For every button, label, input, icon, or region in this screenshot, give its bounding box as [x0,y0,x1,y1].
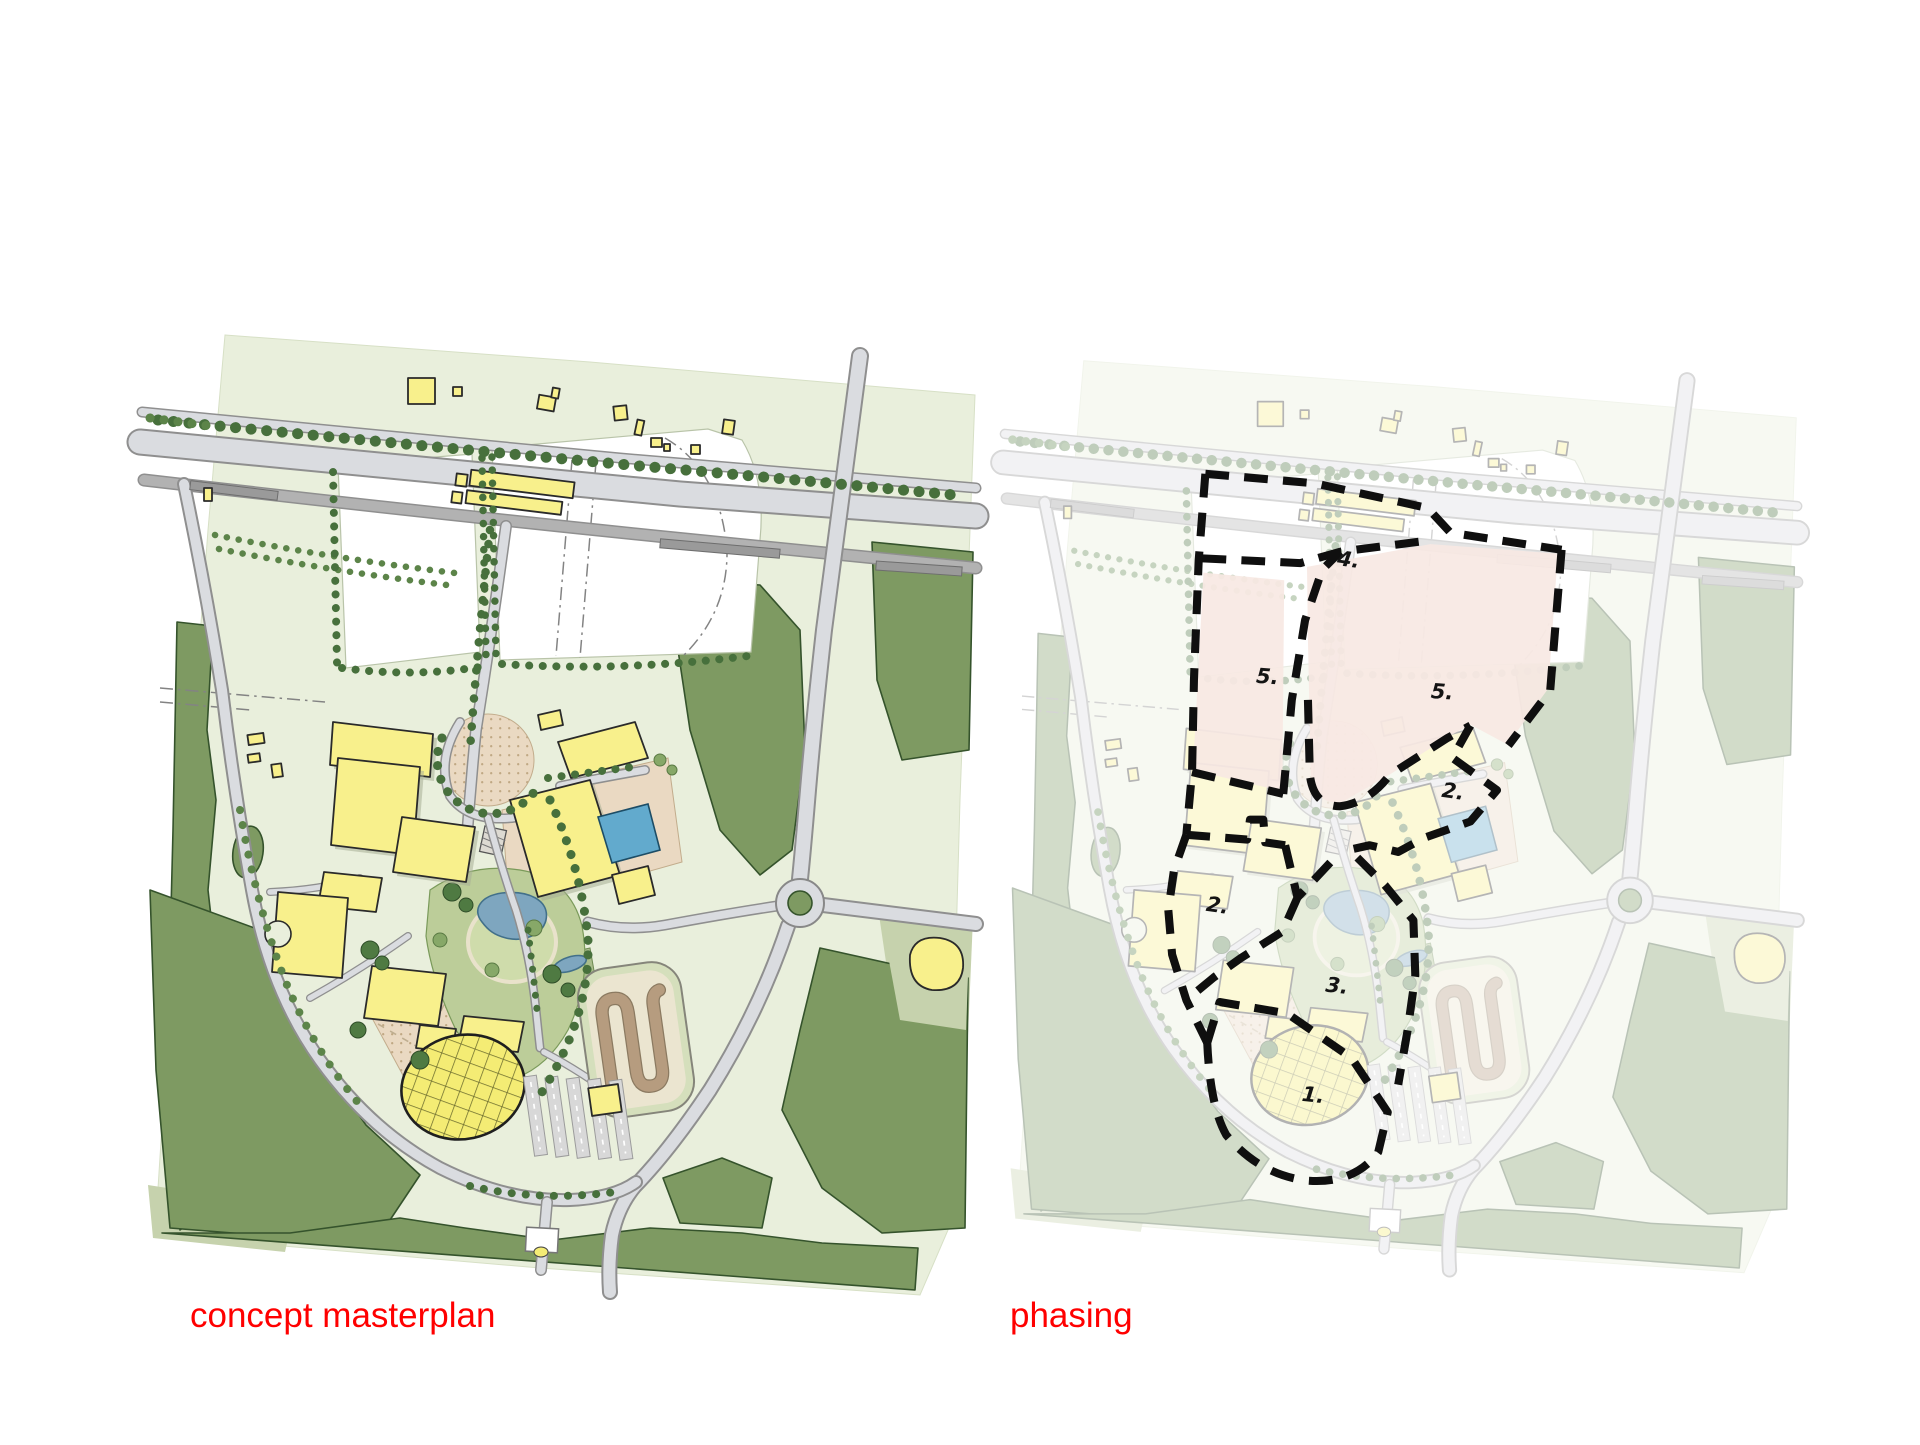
phase-label-2b: 2. [1440,778,1466,805]
masterplan-figure: 1. 2. 2. 3. 4. 5. 5. [0,0,1920,1440]
phase-label-4: 4. [1335,546,1362,573]
slide-canvas: 1. 2. 2. 3. 4. 5. 5. concept masterplan … [0,0,1920,1440]
phase-label-1: 1. [1301,1082,1326,1108]
phasing-map: 1. 2. 2. 3. 4. 5. 5. [1003,361,1797,1273]
phase-label-2a: 2. [1205,892,1231,919]
phasing-base-faded [1003,361,1797,1273]
phase-label-5a: 5. [1255,664,1279,690]
caption-phasing: phasing [1010,1297,1133,1335]
phase-label-3: 3. [1325,973,1350,999]
phase-label-5b: 5. [1430,679,1454,705]
concept-masterplan-map [140,335,976,1295]
caption-concept-masterplan: concept masterplan [190,1297,495,1335]
